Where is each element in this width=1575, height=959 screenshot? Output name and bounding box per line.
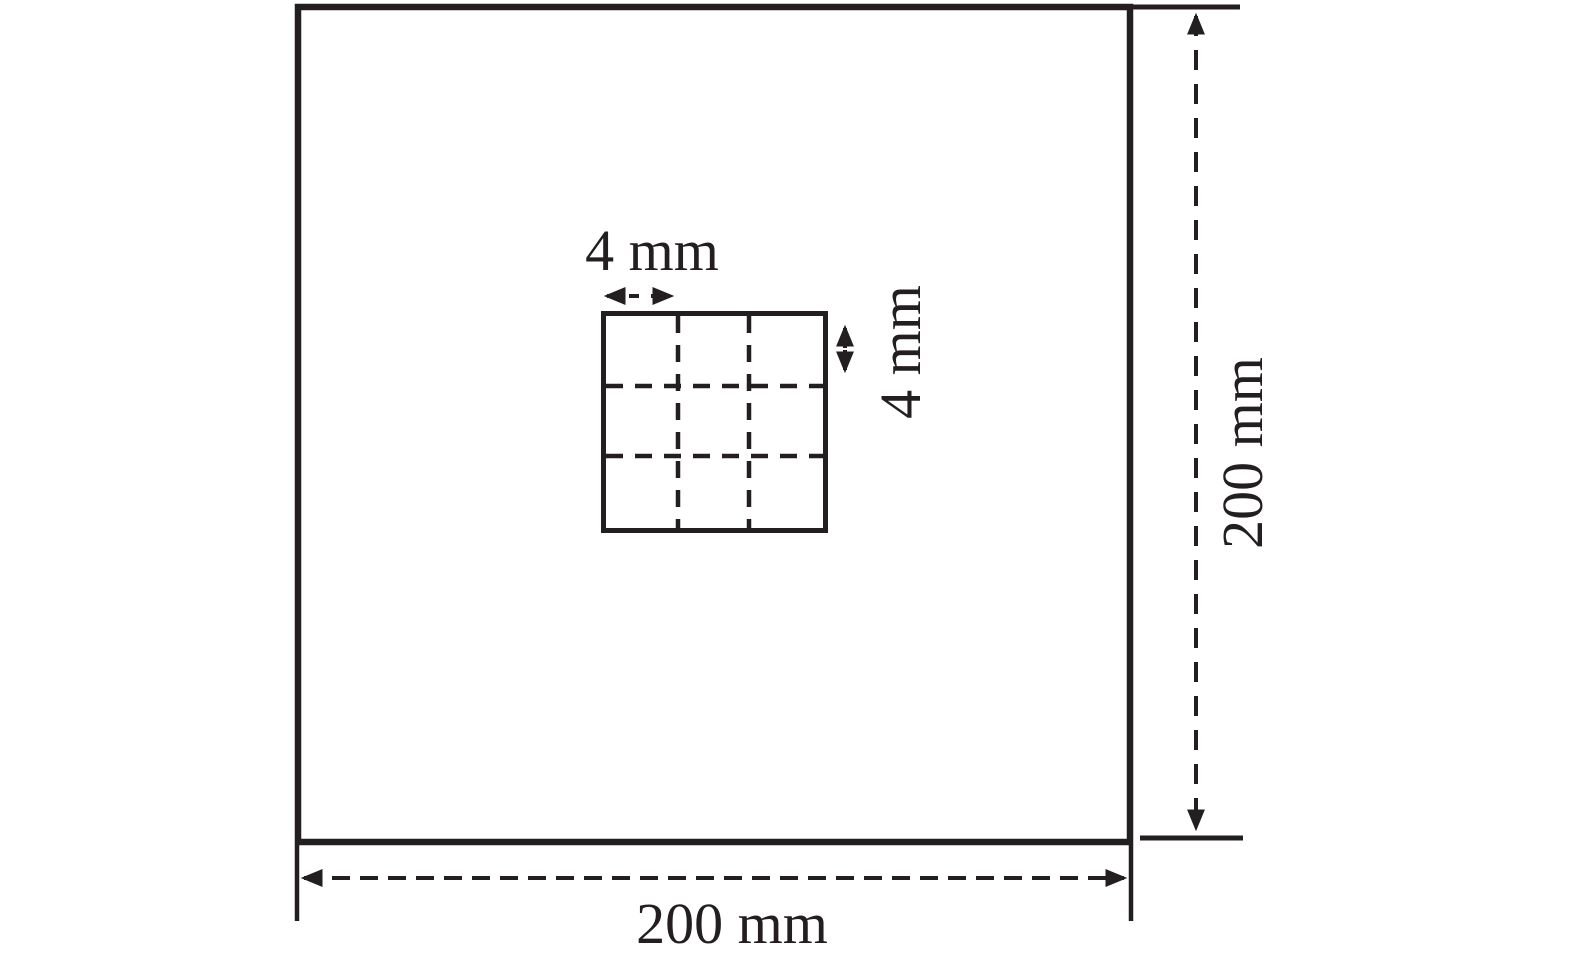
- plate-height-label: 200 mm: [1210, 357, 1275, 549]
- cell-width-label: 4 mm: [585, 218, 719, 283]
- inner-grid-square: [604, 314, 826, 531]
- figure-canvas: 4 mm 4 mm 200 mm 200 mm: [0, 0, 1575, 959]
- plate-width-label: 200 mm: [636, 891, 828, 956]
- cell-height-label: 4 mm: [868, 285, 933, 419]
- outer-square: [298, 7, 1130, 842]
- specimen-diagram: 4 mm 4 mm 200 mm 200 mm: [0, 0, 1575, 959]
